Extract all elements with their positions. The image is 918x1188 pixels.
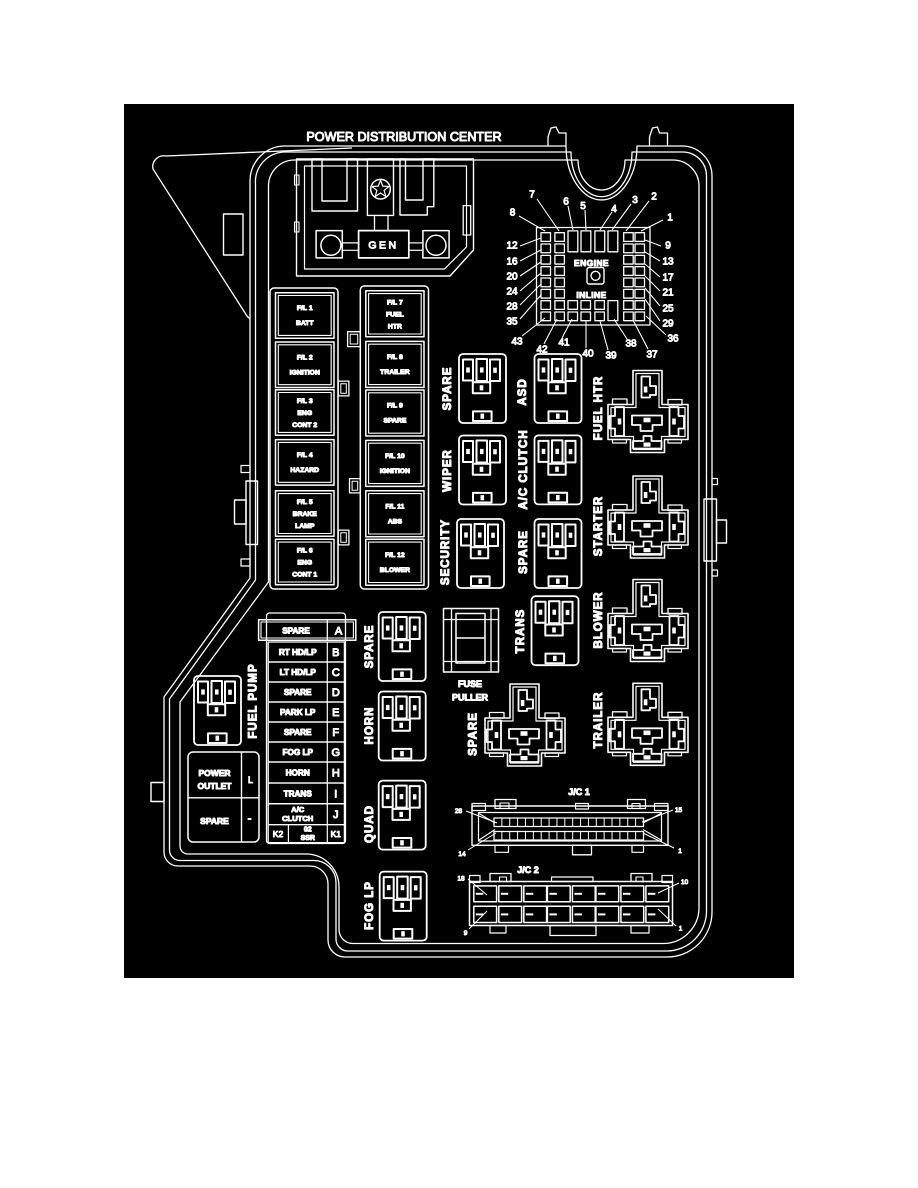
svg-text:HTR: HTR bbox=[388, 323, 402, 330]
svg-text:G: G bbox=[332, 747, 341, 759]
svg-text:J/C 2: J/C 2 bbox=[517, 865, 539, 875]
svg-text:29: 29 bbox=[662, 319, 674, 330]
svg-text:24: 24 bbox=[506, 287, 518, 298]
svg-text:17: 17 bbox=[662, 273, 674, 284]
svg-text:SPARE: SPARE bbox=[383, 418, 406, 425]
svg-text:ENG: ENG bbox=[297, 410, 312, 417]
svg-text:SPARE: SPARE bbox=[518, 530, 530, 574]
svg-text:14: 14 bbox=[458, 851, 466, 858]
svg-text:35: 35 bbox=[506, 317, 518, 328]
svg-text:CONT 2: CONT 2 bbox=[292, 422, 317, 429]
svg-text:F/L 12: F/L 12 bbox=[385, 552, 405, 559]
svg-text:8: 8 bbox=[510, 208, 516, 219]
svg-text:I: I bbox=[334, 788, 337, 800]
svg-text:A/C: A/C bbox=[291, 805, 305, 814]
svg-text:BLOWER: BLOWER bbox=[593, 591, 605, 648]
svg-text:C: C bbox=[332, 667, 340, 679]
svg-text:12: 12 bbox=[506, 241, 518, 252]
svg-text:HAZARD: HAZARD bbox=[290, 467, 319, 474]
svg-text:POWER DISTRIBUTION CENTER: POWER DISTRIBUTION CENTER bbox=[306, 130, 501, 144]
svg-text:E: E bbox=[332, 707, 339, 719]
svg-text:FUEL: FUEL bbox=[386, 311, 404, 318]
svg-text:SPARE: SPARE bbox=[442, 367, 454, 411]
svg-text:IGNITION: IGNITION bbox=[380, 468, 410, 475]
svg-text:SECURITY: SECURITY bbox=[440, 519, 452, 585]
svg-text:IGNITION: IGNITION bbox=[290, 369, 320, 376]
svg-text:F/L 4: F/L 4 bbox=[297, 452, 313, 459]
svg-text:ENGINE: ENGINE bbox=[574, 258, 609, 268]
svg-text:28: 28 bbox=[506, 302, 518, 313]
svg-text:-: - bbox=[248, 811, 252, 825]
svg-text:FUEL HTR: FUEL HTR bbox=[593, 376, 605, 441]
svg-text:LT HD/LP: LT HD/LP bbox=[280, 668, 317, 677]
svg-text:F: F bbox=[332, 727, 339, 739]
svg-text:ENG: ENG bbox=[297, 560, 312, 567]
svg-text:28: 28 bbox=[455, 808, 463, 815]
svg-text:BATT: BATT bbox=[296, 320, 314, 327]
svg-text:F/L 3: F/L 3 bbox=[297, 398, 313, 405]
svg-text:9: 9 bbox=[464, 930, 468, 937]
svg-text:41: 41 bbox=[558, 338, 570, 349]
svg-text:20: 20 bbox=[506, 272, 518, 283]
svg-text:9: 9 bbox=[665, 241, 671, 252]
svg-text:HORN: HORN bbox=[364, 707, 376, 745]
svg-text:FOG LP: FOG LP bbox=[364, 881, 376, 930]
svg-text:HORN: HORN bbox=[286, 769, 310, 778]
svg-text:TRAILER: TRAILER bbox=[593, 692, 605, 749]
svg-text:B: B bbox=[332, 647, 339, 659]
svg-text:FUSE: FUSE bbox=[458, 679, 482, 689]
svg-text:BRAKE: BRAKE bbox=[293, 511, 318, 518]
svg-text:18: 18 bbox=[457, 876, 465, 883]
svg-text:38: 38 bbox=[625, 339, 637, 350]
svg-text:13: 13 bbox=[662, 257, 674, 268]
svg-text:SPARE: SPARE bbox=[364, 625, 376, 669]
svg-text:SSR: SSR bbox=[301, 835, 315, 842]
svg-text:15: 15 bbox=[675, 807, 683, 814]
svg-text:RT HD/LP: RT HD/LP bbox=[279, 648, 317, 657]
svg-text:WIPER: WIPER bbox=[442, 449, 454, 492]
svg-text:POWER: POWER bbox=[198, 768, 230, 778]
svg-text:1: 1 bbox=[678, 848, 682, 855]
svg-text:CLUTCH: CLUTCH bbox=[282, 814, 313, 823]
svg-text:FOG LP: FOG LP bbox=[282, 748, 313, 757]
svg-text:SPARE: SPARE bbox=[284, 688, 312, 697]
svg-text:10: 10 bbox=[681, 879, 689, 886]
svg-text:ASD: ASD bbox=[517, 378, 529, 405]
svg-text:A/C CLUTCH: A/C CLUTCH bbox=[518, 429, 530, 509]
svg-text:F/L 7: F/L 7 bbox=[387, 299, 403, 306]
svg-text:INLINE: INLINE bbox=[576, 290, 606, 300]
svg-text:4: 4 bbox=[611, 204, 617, 215]
svg-text:39: 39 bbox=[605, 351, 617, 362]
svg-text:LAMP: LAMP bbox=[295, 523, 315, 530]
svg-text:PULLER: PULLER bbox=[452, 693, 489, 703]
svg-text:OUTLET: OUTLET bbox=[198, 781, 233, 791]
svg-text:J: J bbox=[333, 809, 339, 821]
svg-text:3: 3 bbox=[632, 195, 638, 206]
svg-text:F/L 8: F/L 8 bbox=[387, 354, 403, 361]
svg-text:F/L 11: F/L 11 bbox=[385, 503, 404, 510]
svg-text:TRAILER: TRAILER bbox=[380, 369, 410, 376]
svg-text:SPARE: SPARE bbox=[200, 816, 229, 826]
svg-text:K2: K2 bbox=[273, 829, 284, 839]
svg-text:SPARE: SPARE bbox=[468, 712, 480, 756]
svg-text:37: 37 bbox=[646, 350, 658, 361]
svg-text:1: 1 bbox=[667, 213, 673, 224]
svg-text:25: 25 bbox=[662, 304, 674, 315]
svg-text:BLOWER: BLOWER bbox=[380, 567, 410, 574]
svg-text:1: 1 bbox=[679, 926, 683, 933]
svg-text:STARTER: STARTER bbox=[593, 496, 605, 556]
svg-text:A: A bbox=[335, 626, 343, 638]
svg-text:L: L bbox=[248, 775, 253, 785]
svg-text:43: 43 bbox=[511, 337, 523, 348]
svg-text:SPARE: SPARE bbox=[282, 627, 310, 636]
svg-text:16: 16 bbox=[506, 257, 518, 268]
svg-text:GEN: GEN bbox=[368, 240, 398, 252]
svg-text:2: 2 bbox=[651, 192, 657, 203]
svg-text:02: 02 bbox=[304, 827, 312, 834]
svg-text:F/L 2: F/L 2 bbox=[297, 354, 313, 361]
svg-text:36: 36 bbox=[667, 334, 679, 345]
svg-text:6: 6 bbox=[563, 197, 569, 208]
svg-text:F/L 5: F/L 5 bbox=[297, 499, 313, 506]
svg-text:F/L 9: F/L 9 bbox=[387, 403, 403, 410]
svg-text:SPARE: SPARE bbox=[284, 728, 312, 737]
svg-text:CONT 1: CONT 1 bbox=[292, 572, 317, 579]
svg-text:40: 40 bbox=[582, 349, 594, 360]
svg-text:7: 7 bbox=[529, 190, 535, 201]
svg-text:H: H bbox=[332, 768, 340, 780]
svg-text:F/L 6: F/L 6 bbox=[297, 548, 313, 555]
svg-text:FUEL PUMP: FUEL PUMP bbox=[248, 663, 260, 738]
svg-text:PARK LP: PARK LP bbox=[280, 708, 316, 717]
svg-text:ABS: ABS bbox=[388, 518, 403, 525]
svg-text:F/L 1: F/L 1 bbox=[297, 305, 313, 312]
svg-text:TRANS: TRANS bbox=[284, 789, 313, 798]
svg-text:K1: K1 bbox=[331, 829, 342, 839]
svg-text:J/C 1: J/C 1 bbox=[568, 787, 590, 797]
svg-text:QUAD: QUAD bbox=[364, 805, 376, 843]
svg-text:D: D bbox=[332, 687, 340, 699]
svg-text:TRANS: TRANS bbox=[515, 609, 527, 654]
svg-text:21: 21 bbox=[662, 288, 674, 299]
svg-text:F/L 10: F/L 10 bbox=[385, 453, 405, 460]
